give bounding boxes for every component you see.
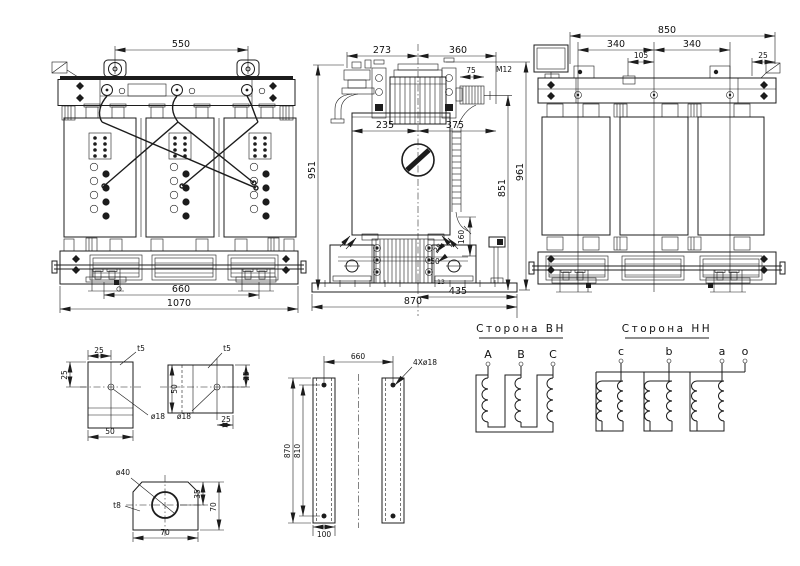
hv-terminal-c: C — [549, 348, 557, 361]
roller-brackets-rear — [552, 270, 750, 292]
rails-dim-810: 810 — [293, 444, 302, 459]
bottom-clamp-feet — [64, 238, 294, 251]
lv-terminal-a: a — [719, 345, 726, 358]
side-dim-360: 360 — [449, 45, 467, 56]
side-dim-25: 25 — [432, 242, 445, 255]
side-dim-75: 75 — [466, 66, 476, 75]
side-dim-13: 13 — [437, 279, 445, 286]
rear-dim-25: 25 — [758, 51, 768, 60]
side-bottom-assembly — [312, 234, 517, 292]
side-dim-160: 160 — [457, 230, 466, 245]
hv-terminal-b: B — [517, 348, 525, 361]
plate-a-hole: ø18 — [151, 412, 165, 421]
marker-flag-right — [761, 63, 780, 78]
marker-flag-left — [52, 62, 78, 77]
rails-dim-660: 660 — [351, 352, 366, 361]
rear-view: 850 340 340 105 25 — [529, 25, 785, 292]
rear-beam — [538, 66, 776, 103]
front-dim-550: 550 — [172, 39, 190, 50]
transformer-drawing: 550 — [0, 0, 800, 566]
lv-terminal-b: b — [666, 345, 673, 358]
junction-box — [534, 45, 568, 78]
hv-bushing-side — [456, 86, 496, 104]
winding-columns-front — [64, 118, 296, 237]
front-dim-1070: 1070 — [167, 298, 191, 309]
hv-terminal-a: A — [484, 348, 492, 361]
plate-a-thickness: t5 — [137, 344, 145, 353]
hv-cables — [100, 96, 258, 190]
side-dim-50: 50 — [430, 257, 440, 266]
winding-columns-rear — [542, 117, 764, 235]
plate-b-dim-25-right: 25 — [242, 371, 251, 381]
lv-terminal-o: o — [742, 345, 749, 358]
front-dim-660: 660 — [172, 284, 190, 295]
base-front — [52, 251, 306, 284]
plate-a-dim-50: 50 — [105, 427, 115, 436]
winding-stack-top — [390, 58, 456, 124]
detail-rails: 660 4Xø18 870 810 100 — [283, 352, 437, 539]
hv-diagram-title: Сторона ВН — [476, 323, 566, 335]
rails-dim-100: 100 — [317, 530, 332, 539]
plate-c-dim-70-right: 70 — [209, 502, 218, 512]
lv-diagram-title: Сторона НН — [622, 323, 712, 335]
detail-plate-c: ø40 t8 70 35 70 — [113, 468, 224, 542]
rear-dim-105: 105 — [634, 51, 649, 60]
side-dim-235: 235 — [376, 120, 394, 131]
detail-plate-b: t5 50 25 ø18 25 — [160, 344, 251, 429]
detail-plate-a: 25 25 t5 ø18 50 — [60, 344, 165, 441]
side-dim-273: 273 — [373, 45, 391, 56]
rear-bottom-feet — [547, 237, 750, 250]
side-view: 273 360 75 M12 — [307, 44, 530, 318]
hv-winding-diagram: Сторона ВН A B C — [476, 323, 566, 432]
lv-terminal-c: c — [618, 345, 624, 358]
plate-c-dim-70-bottom: 70 — [160, 528, 170, 537]
side-dim-951: 951 — [307, 161, 318, 179]
rear-dim-340-right: 340 — [683, 39, 701, 50]
rear-dim-850: 850 — [658, 25, 676, 36]
plate-a-dim-25-top: 25 — [94, 346, 104, 355]
rear-top-feet — [547, 104, 750, 117]
side-dim-961: 961 — [515, 163, 526, 181]
side-dim-851: 851 — [497, 179, 508, 197]
plate-c-thickness: t8 — [113, 501, 121, 510]
rails-dim-870: 870 — [283, 444, 292, 459]
side-dim-375: 375 — [446, 120, 464, 131]
side-dim-870: 870 — [404, 296, 422, 307]
plate-c-dim-35: 35 — [193, 489, 202, 499]
lv-bushing-side — [331, 60, 386, 123]
tap-terminals — [89, 133, 271, 220]
side-thread-m12: M12 — [496, 65, 512, 74]
front-view: 550 — [52, 39, 306, 313]
plate-a-dim-25-left: 25 — [60, 370, 69, 380]
hv-bushings-top — [102, 85, 265, 96]
rear-dim-340-left: 340 — [607, 39, 625, 50]
plate-b-dim-50: 50 — [170, 384, 179, 394]
plate-b-thickness: t5 — [223, 344, 231, 353]
transformer-drawing-sheet: 550 — [0, 0, 800, 566]
nameplate — [128, 84, 166, 96]
base-rear — [529, 252, 785, 284]
plate-b-dim-25-bottom: 25 — [221, 415, 231, 424]
rails-holes-note: 4Xø18 — [413, 358, 437, 367]
plate-c-hole: ø40 — [116, 468, 130, 477]
lv-winding-diagram: Сторона НН c b a o — [596, 323, 749, 431]
side-dim-435: 435 — [449, 286, 467, 297]
plate-b-hole: ø18 — [177, 412, 191, 421]
